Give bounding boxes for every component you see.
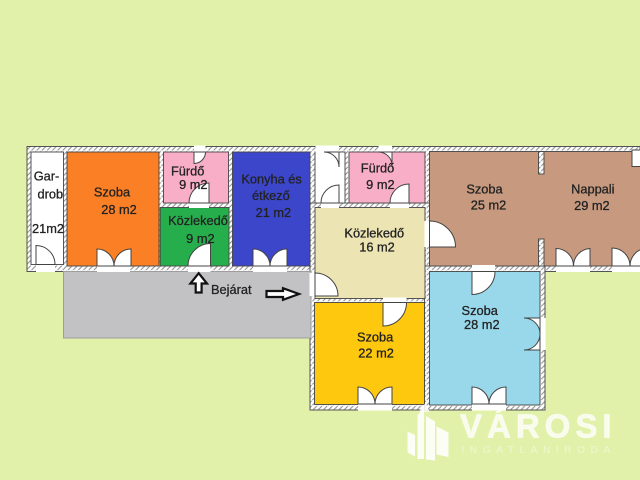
svg-text:28 m2: 28 m2 <box>464 317 500 332</box>
svg-text:28 m2: 28 m2 <box>101 202 137 217</box>
svg-text:VÁROSI: VÁROSI <box>460 408 617 445</box>
svg-text:Gar-: Gar- <box>34 169 60 184</box>
svg-text:9 m2: 9 m2 <box>179 177 207 192</box>
svg-text:Nappali: Nappali <box>571 182 614 197</box>
svg-text:9 m2: 9 m2 <box>186 231 214 246</box>
svg-text:25 m2: 25 m2 <box>471 197 507 212</box>
svg-text:21 m2: 21 m2 <box>256 205 292 220</box>
svg-text:Fürdő: Fürdő <box>361 161 394 176</box>
svg-text:9 m2: 9 m2 <box>366 177 394 192</box>
svg-text:drob: drob <box>37 186 63 201</box>
svg-text:Szoba: Szoba <box>357 329 394 344</box>
svg-text:Szoba: Szoba <box>94 185 131 200</box>
svg-text:Közlekedő: Közlekedő <box>168 213 228 228</box>
svg-text:Bejárat: Bejárat <box>211 282 252 297</box>
svg-text:INGATLANIRODA: INGATLANIRODA <box>462 445 616 456</box>
svg-text:16 m2: 16 m2 <box>359 240 395 255</box>
svg-text:Közlekedő: Közlekedő <box>344 225 404 240</box>
svg-text:Szoba: Szoba <box>466 181 503 196</box>
svg-text:Konyha és: Konyha és <box>241 171 301 186</box>
svg-text:étkező: étkező <box>252 188 290 203</box>
svg-text:22 m2: 22 m2 <box>358 346 394 361</box>
svg-text:21m2: 21m2 <box>32 221 64 236</box>
svg-text:29 m2: 29 m2 <box>574 198 610 213</box>
svg-text:Szoba: Szoba <box>462 303 499 318</box>
